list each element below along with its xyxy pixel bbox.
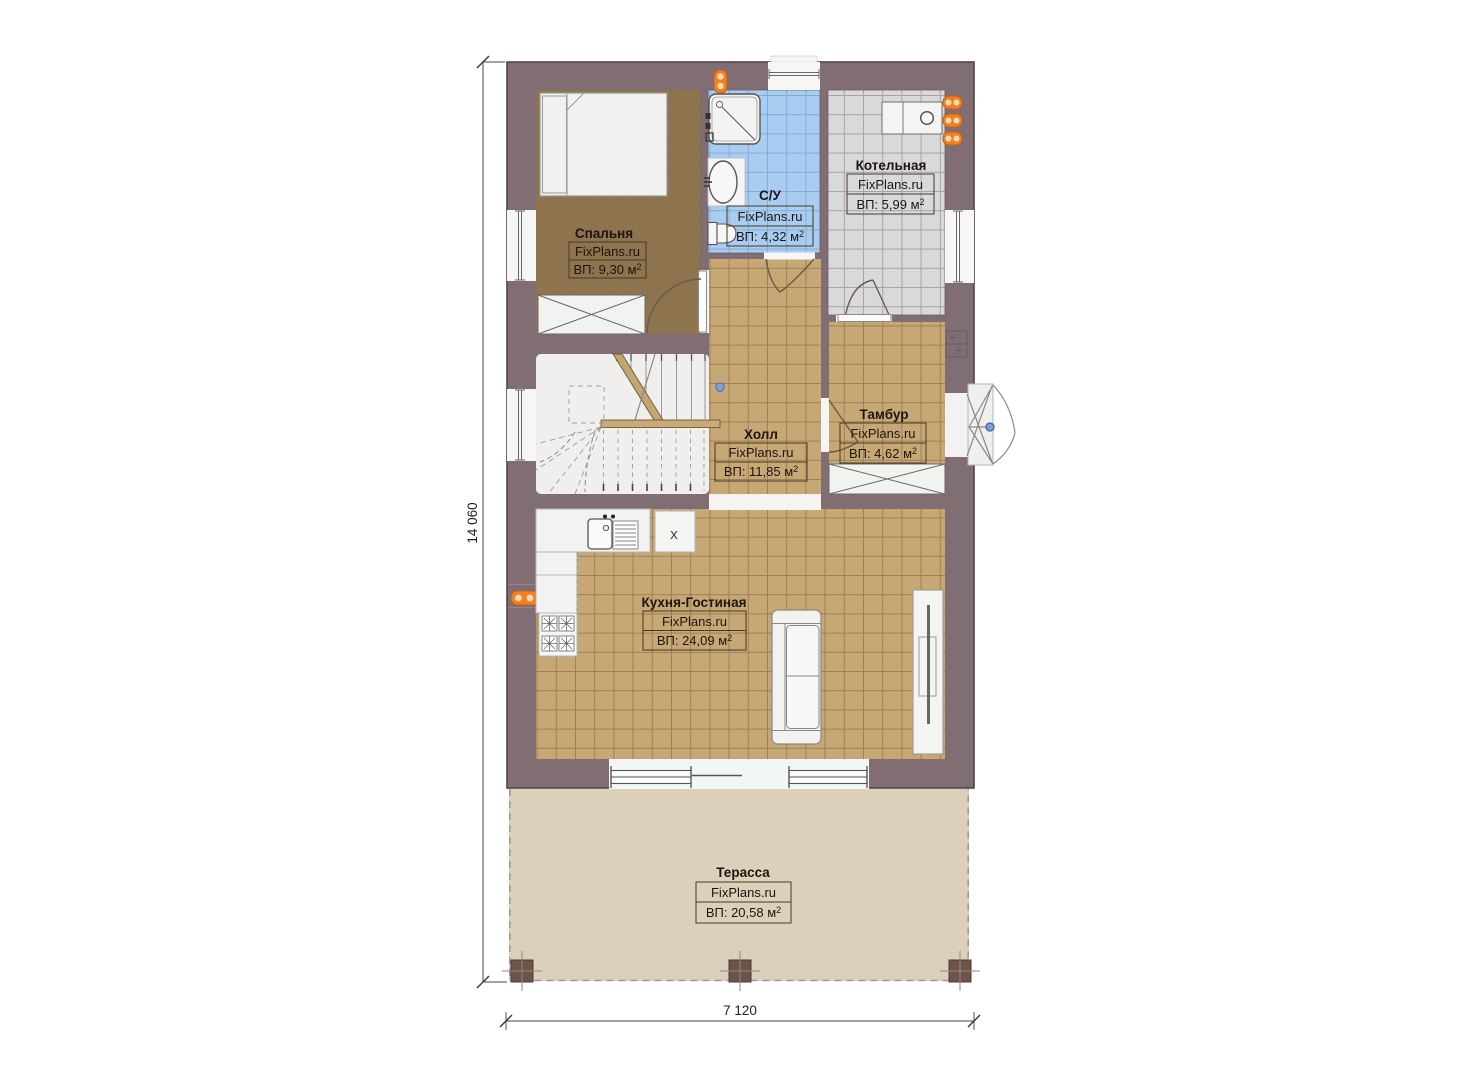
svg-text:С/У: С/У <box>759 188 782 203</box>
svg-text:Холл: Холл <box>744 427 778 442</box>
svg-text:FixPlans.ru: FixPlans.ru <box>662 614 727 629</box>
svg-text:FixPlans.ru: FixPlans.ru <box>737 209 802 224</box>
svg-text:FixPlans.ru: FixPlans.ru <box>850 426 915 441</box>
svg-text:ВП: 20,58 м2: ВП: 20,58 м2 <box>706 905 781 920</box>
svg-text:7 120: 7 120 <box>723 1003 757 1018</box>
svg-text:Котельная: Котельная <box>856 158 927 173</box>
svg-text:Кухня-Гостиная: Кухня-Гостиная <box>642 595 747 610</box>
svg-text:FixPlans.ru: FixPlans.ru <box>858 177 923 192</box>
svg-text:ВП: 9,30 м2: ВП: 9,30 м2 <box>573 262 641 277</box>
svg-text:ВП: 4,62 м2: ВП: 4,62 м2 <box>849 446 917 461</box>
svg-text:ВП: 11,85 м2: ВП: 11,85 м2 <box>724 464 798 479</box>
svg-text:ВП: 24,09 м2: ВП: 24,09 м2 <box>657 633 732 648</box>
svg-text:Спальня: Спальня <box>575 226 633 241</box>
svg-text:FixPlans.ru: FixPlans.ru <box>711 885 776 900</box>
svg-text:14 060: 14 060 <box>465 502 480 543</box>
svg-text:FixPlans.ru: FixPlans.ru <box>728 445 793 460</box>
svg-text:x: x <box>670 526 678 543</box>
svg-text:ВП: 5,99 м2: ВП: 5,99 м2 <box>856 197 924 212</box>
svg-text:ВП: 4,32 м2: ВП: 4,32 м2 <box>736 229 804 244</box>
svg-text:Терасса: Терасса <box>716 865 770 880</box>
svg-text:Тамбур: Тамбур <box>860 407 909 422</box>
svg-text:FixPlans.ru: FixPlans.ru <box>575 244 640 259</box>
